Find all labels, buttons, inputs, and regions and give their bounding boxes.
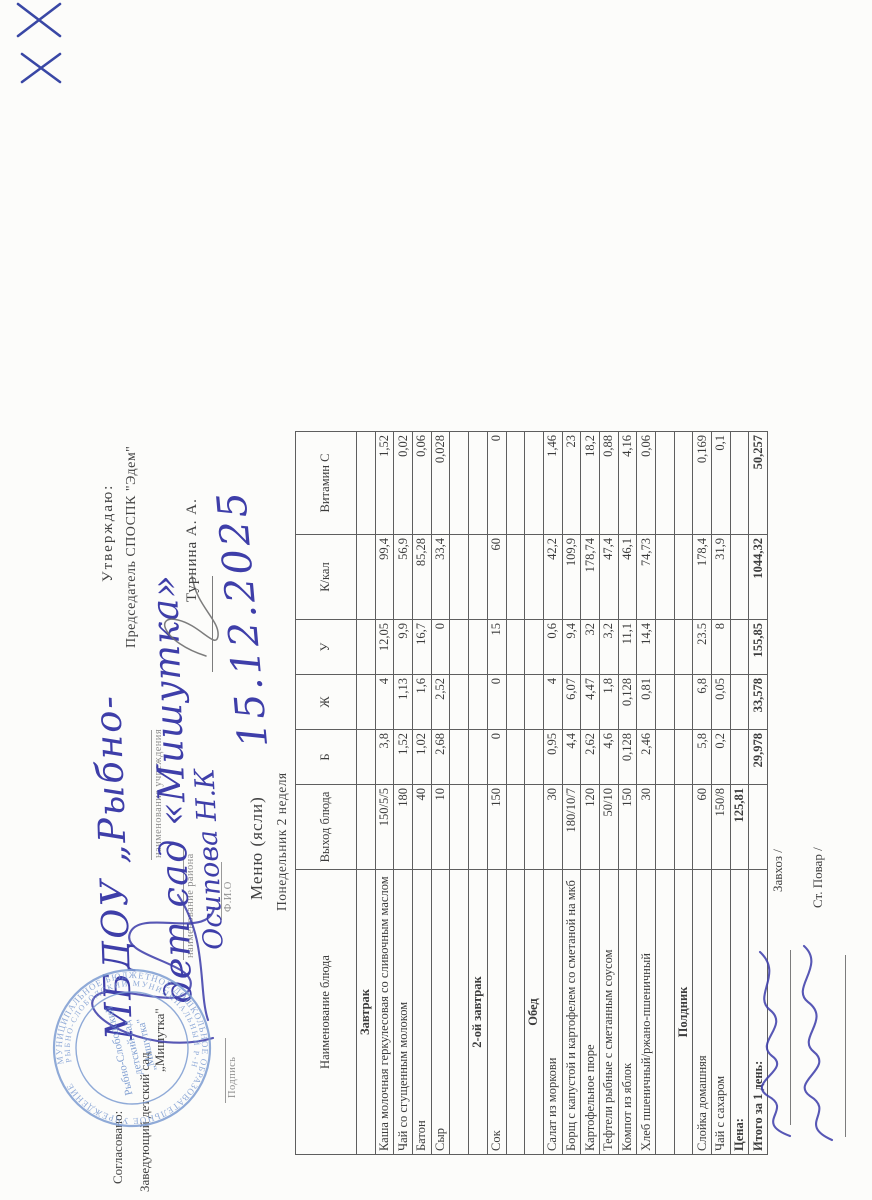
value-cell: 4 [543,675,562,730]
value-cell [674,535,693,620]
value-cell: 9,4 [562,620,581,675]
table-row-dish: Батон401,021,616,785,280,06 [413,432,432,1155]
value-cell [469,730,488,785]
column-header-4: У [296,620,357,675]
menu-title: Меню (ясли) [247,796,267,900]
value-cell [525,730,544,785]
value-cell: 2,62 [581,730,600,785]
approver-title: Председатель СПОСПК "Эдем" [124,446,140,648]
value-cell: 6,07 [562,675,581,730]
table-row-section: Завтрак [357,432,376,1155]
value-cell [656,432,675,535]
value-cell [469,675,488,730]
value-cell [674,730,693,785]
value-cell: 1,13 [394,675,413,730]
value-cell [749,785,768,870]
value-cell: 0,128 [618,730,637,785]
value-cell: 155,85 [749,620,768,675]
value-cell: 1,02 [413,730,432,785]
table-header-row: Наименование блюдаВыход блюдаБЖУК/калВит… [296,432,357,1155]
value-cell: 1044,32 [749,535,768,620]
value-cell: 4,16 [618,432,637,535]
value-cell: 30 [637,785,656,870]
table-row-empty [450,432,469,1155]
value-cell [525,535,544,620]
column-header-2: Б [296,730,357,785]
table-row-dish: Тефтели рыбные с сметанным соусом50/104,… [599,432,618,1155]
dish-name: Каша молочная геркулесовая со сливочным … [375,870,394,1155]
value-cell: 0,88 [599,432,618,535]
value-cell [469,432,488,535]
table-row-section: Обед [525,432,544,1155]
value-cell: 4,47 [581,675,600,730]
value-cell [506,785,525,870]
table-row-section: 2-ой завтрак [469,432,488,1155]
value-cell [450,785,469,870]
value-cell [506,535,525,620]
value-cell: 0,02 [394,432,413,535]
value-cell [469,785,488,870]
value-cell: 31,9 [712,535,731,620]
value-cell [656,675,675,730]
value-cell [525,785,544,870]
value-cell: 42,2 [543,535,562,620]
value-cell [674,432,693,535]
dish-name [656,870,675,1155]
value-cell: 0,128 [618,675,637,730]
value-cell: 12,05 [375,620,394,675]
value-cell: 0,95 [543,730,562,785]
value-cell [450,675,469,730]
value-cell: 0,06 [637,432,656,535]
value-cell: 5,8 [693,730,712,785]
value-cell: 2,68 [431,730,450,785]
value-cell [357,535,376,620]
value-cell: 3,8 [375,730,394,785]
caption-signature: Подпись [227,1057,238,1098]
dish-name: Картофельное пюре [581,870,600,1155]
value-cell: 0,06 [413,432,432,535]
value-cell: 18,2 [581,432,600,535]
section-name: 2-ой завтрак [469,870,488,1155]
value-cell [357,675,376,730]
zavhoz-label: Завхоз / [770,849,786,892]
value-cell [469,535,488,620]
value-cell: 16,7 [413,620,432,675]
value-cell: 50/10 [599,785,618,870]
value-cell: 99,4 [375,535,394,620]
value-cell [506,675,525,730]
table-row-dish: Компот из яблок1500,1280,12811,146,14,16 [618,432,637,1155]
value-cell [450,620,469,675]
dish-name: Чай с сахаром [712,870,731,1155]
value-cell: 11,1 [618,620,637,675]
pen-cross-marks [10,0,70,88]
value-cell [730,432,749,535]
table-row-empty [656,432,675,1155]
value-cell: 120 [581,785,600,870]
column-header-3: Ж [296,675,357,730]
value-cell [357,785,376,870]
menu-subtitle: Понедельник 2 неделя [274,772,290,911]
value-cell: 150/5/5 [375,785,394,870]
value-cell: 0 [487,432,506,535]
value-cell: 40 [413,785,432,870]
value-cell: 60 [487,535,506,620]
value-cell: 4 [375,675,394,730]
value-cell: 1,52 [375,432,394,535]
value-cell: 3,2 [599,620,618,675]
table-row-dish: Хлеб пшеничный/ржано-пшеничный302,460,81… [637,432,656,1155]
value-cell: 46,1 [618,535,637,620]
value-cell: 74,73 [637,535,656,620]
table-row-dish: Борщ с капустой и картофелем со сметаной… [562,432,581,1155]
value-cell: 9,9 [394,620,413,675]
section-name: Полдник [674,870,693,1155]
section-name: Обед [525,870,544,1155]
approver-signature-line [212,576,213,672]
value-cell [730,535,749,620]
value-cell [730,620,749,675]
column-header-5: К/кал [296,535,357,620]
value-cell: 0,1 [712,432,731,535]
value-cell: 150 [618,785,637,870]
dish-name: Борщ с капустой и картофелем со сметаной… [562,870,581,1155]
value-cell: 33,578 [749,675,768,730]
value-cell: 32 [581,620,600,675]
value-cell: 0 [487,675,506,730]
value-cell [656,535,675,620]
value-cell: 50,257 [749,432,768,535]
dish-name [450,870,469,1155]
approve-label: Утверждаю: [100,484,117,582]
dish-name: Хлеб пшеничный/ржано-пшеничный [637,870,656,1155]
value-cell: 15 [487,620,506,675]
value-cell: 23 [562,432,581,535]
dish-name: Слойка домашняя [693,870,712,1155]
value-cell [357,730,376,785]
value-cell: 6,8 [693,675,712,730]
value-cell [656,730,675,785]
value-cell: 29,978 [749,730,768,785]
value-cell [656,785,675,870]
value-cell [450,432,469,535]
value-cell: 0 [487,730,506,785]
value-cell: 0,2 [712,730,731,785]
value-cell [450,730,469,785]
value-cell: 180 [394,785,413,870]
section-name: Завтрак [357,870,376,1155]
value-cell [525,675,544,730]
value-cell: 0 [431,620,450,675]
value-cell [357,432,376,535]
value-cell: 10 [431,785,450,870]
cook-label: Ст. Повар / [810,847,826,908]
value-cell: 1,8 [599,675,618,730]
table-row-dish: Сок1500015600 [487,432,506,1155]
dish-name: Сыр [431,870,450,1155]
table-row-dish: Чай со сгущенным молоком1801,521,139,956… [394,432,413,1155]
value-cell: 109,9 [562,535,581,620]
table-row-dish: Слойка домашняя605,86,823.5178,40,169 [693,432,712,1155]
dish-name: Сок [487,870,506,1155]
value-cell: 0,6 [543,620,562,675]
value-cell [357,620,376,675]
table-row-section: Полдник [674,432,693,1155]
value-cell [674,620,693,675]
value-cell: 1,46 [543,432,562,535]
value-cell [525,432,544,535]
rotated-document: Согласовано: Заведующий детский сад „Миш… [0,0,872,1200]
value-cell: 8 [712,620,731,675]
value-cell: 4,6 [599,730,618,785]
value-cell [674,785,693,870]
value-cell: 30 [543,785,562,870]
value-cell: 0,169 [693,432,712,535]
value-cell [506,620,525,675]
value-cell: 180/10/7 [562,785,581,870]
dish-name: Тефтели рыбные с сметанным соусом [599,870,618,1155]
approver-name: Турнина А. А. [184,498,201,602]
table-row-empty [506,432,525,1155]
value-cell: 1,6 [413,675,432,730]
value-cell: 2,52 [431,675,450,730]
value-cell: 150 [487,785,506,870]
table-row-dish: Салат из моркови300,9540,642,21,46 [543,432,562,1155]
value-cell: 23.5 [693,620,712,675]
value-cell [506,432,525,535]
column-header-1: Выход блюда [296,785,357,870]
handwritten-date: 15.12.2025 [209,487,277,749]
value-cell: 4,4 [562,730,581,785]
scanned-menu-page: Согласовано: Заведующий детский сад „Миш… [0,0,872,1200]
value-cell [730,730,749,785]
value-cell: 178,4 [693,535,712,620]
value-cell: 150/8 [712,785,731,870]
value-cell [730,675,749,730]
value-cell: 47,4 [599,535,618,620]
value-cell: 60 [693,785,712,870]
value-cell: 0,028 [431,432,450,535]
value-cell [450,535,469,620]
dish-name: Чай со сгущенным молоком [394,870,413,1155]
table-row-dish: Картофельное пюре1202,624,4732178,7418,2 [581,432,600,1155]
value-cell [469,620,488,675]
dish-name: Салат из моркови [543,870,562,1155]
dish-name: Компот из яблок [618,870,637,1155]
value-cell: 0,81 [637,675,656,730]
value-cell: 85,28 [413,535,432,620]
value-cell: 56,9 [394,535,413,620]
table-row-dish: Сыр102,682,52033,40,028 [431,432,450,1155]
value-cell [656,620,675,675]
dish-name: Батон [413,870,432,1155]
value-cell [674,675,693,730]
table-row-dish: Каша молочная геркулесовая со сливочным … [375,432,394,1155]
value-cell: 33,4 [431,535,450,620]
value-cell: 1,52 [394,730,413,785]
value-cell [525,620,544,675]
value-cell: 178,74 [581,535,600,620]
table-row-dish: Чай с сахаром150/80,20,05831,90,1 [712,432,731,1155]
value-cell: 0,05 [712,675,731,730]
column-header-6: Витамин С [296,432,357,535]
value-cell: 14,4 [637,620,656,675]
menu-table: Наименование блюдаВыход блюдаБЖУК/калВит… [295,431,768,1155]
value-cell [506,730,525,785]
cook-signature [782,938,852,1148]
value-cell: 125,81 [730,785,749,870]
value-cell: 2,46 [637,730,656,785]
dish-name [506,870,525,1155]
column-header-0: Наименование блюда [296,870,357,1155]
